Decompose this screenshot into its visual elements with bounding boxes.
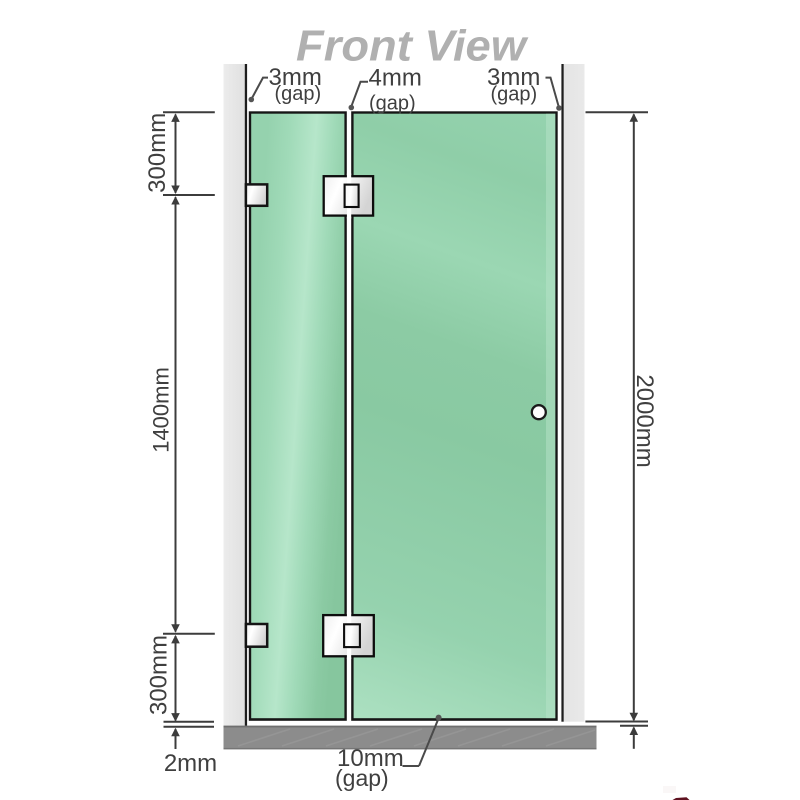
svg-text:300mm: 300mm: [144, 113, 171, 193]
svg-text:4mm: 4mm: [369, 65, 422, 92]
svg-text:1400mm: 1400mm: [149, 367, 174, 453]
svg-text:2mm: 2mm: [164, 750, 217, 777]
svg-text:2000mm: 2000mm: [631, 374, 658, 467]
svg-text:(gap): (gap): [275, 83, 322, 105]
svg-text:(gap): (gap): [491, 84, 538, 106]
svg-text:(gap): (gap): [335, 765, 389, 791]
svg-text:300mm: 300mm: [146, 635, 173, 715]
svg-text:(gap): (gap): [369, 93, 416, 115]
